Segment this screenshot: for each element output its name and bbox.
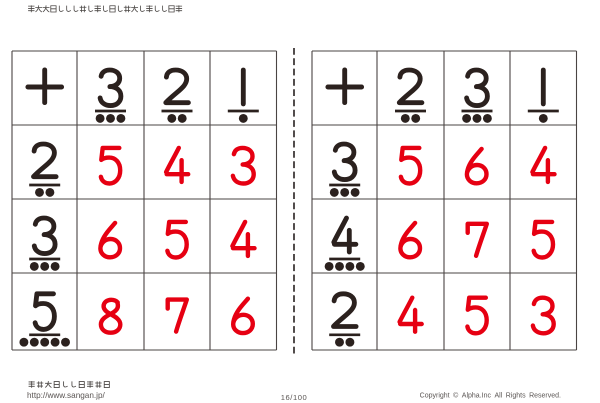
svg-text:http://www.sangan.jp/: http://www.sangan.jp/ [27, 391, 106, 400]
svg-text:Copyright © Alpha.Inc All Righ: Copyright © Alpha.Inc All Rights Reserve… [420, 392, 561, 400]
svg-text:16/100: 16/100 [281, 393, 308, 402]
